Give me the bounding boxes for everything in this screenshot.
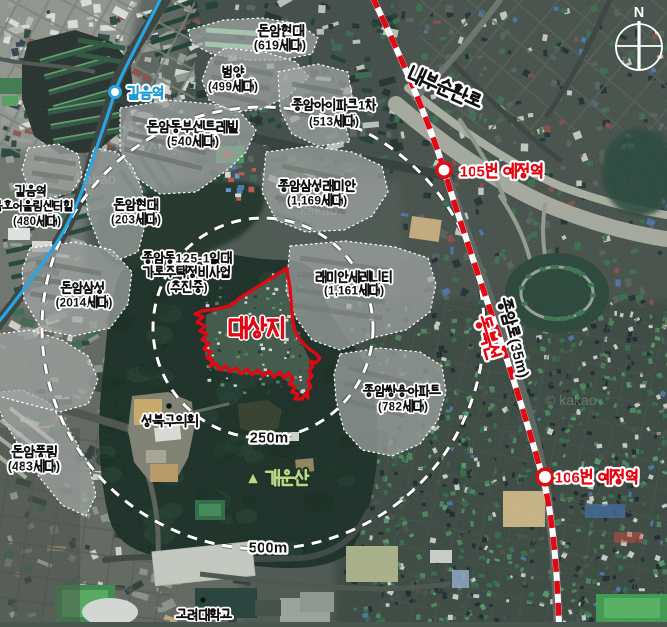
svg-text:): ) [302, 39, 306, 53]
svg-text:(203: (203 [111, 212, 135, 226]
svg-text:N: N [634, 5, 644, 21]
svg-text:(619: (619 [254, 39, 279, 53]
svg-text:(2014: (2014 [56, 295, 87, 309]
svg-text:): ) [215, 135, 219, 149]
svg-text:(540: (540 [167, 135, 192, 149]
svg-text:): ) [108, 295, 112, 309]
svg-text:(782: (782 [378, 399, 402, 413]
svg-text:): ) [56, 460, 60, 474]
svg-text:): ) [380, 283, 384, 297]
svg-text:): ) [254, 79, 258, 93]
svg-text:): ) [424, 399, 428, 413]
svg-text:250m: 250m [250, 429, 288, 446]
svg-text:): ) [355, 114, 359, 128]
svg-text:500m: 500m [249, 539, 287, 556]
svg-text:(499: (499 [208, 79, 232, 93]
svg-text:): ) [57, 216, 61, 228]
svg-text:(1,161: (1,161 [324, 283, 358, 297]
svg-text:kakao: kakao [76, 171, 116, 188]
svg-text:(513: (513 [309, 114, 333, 128]
svg-text:© kakao: © kakao [545, 392, 597, 408]
svg-text:): ) [343, 193, 347, 207]
svg-text:(1,169: (1,169 [287, 193, 321, 207]
svg-text:(483: (483 [8, 460, 33, 474]
svg-text:105: 105 [460, 163, 485, 180]
svg-text:): ) [157, 212, 161, 226]
svg-text:125-1: 125-1 [176, 251, 210, 265]
svg-text:(: ( [166, 280, 170, 294]
svg-text:(480: (480 [13, 216, 36, 228]
svg-text:): ) [204, 280, 208, 294]
svg-text:106: 106 [555, 469, 580, 486]
svg-text:1: 1 [358, 98, 365, 112]
